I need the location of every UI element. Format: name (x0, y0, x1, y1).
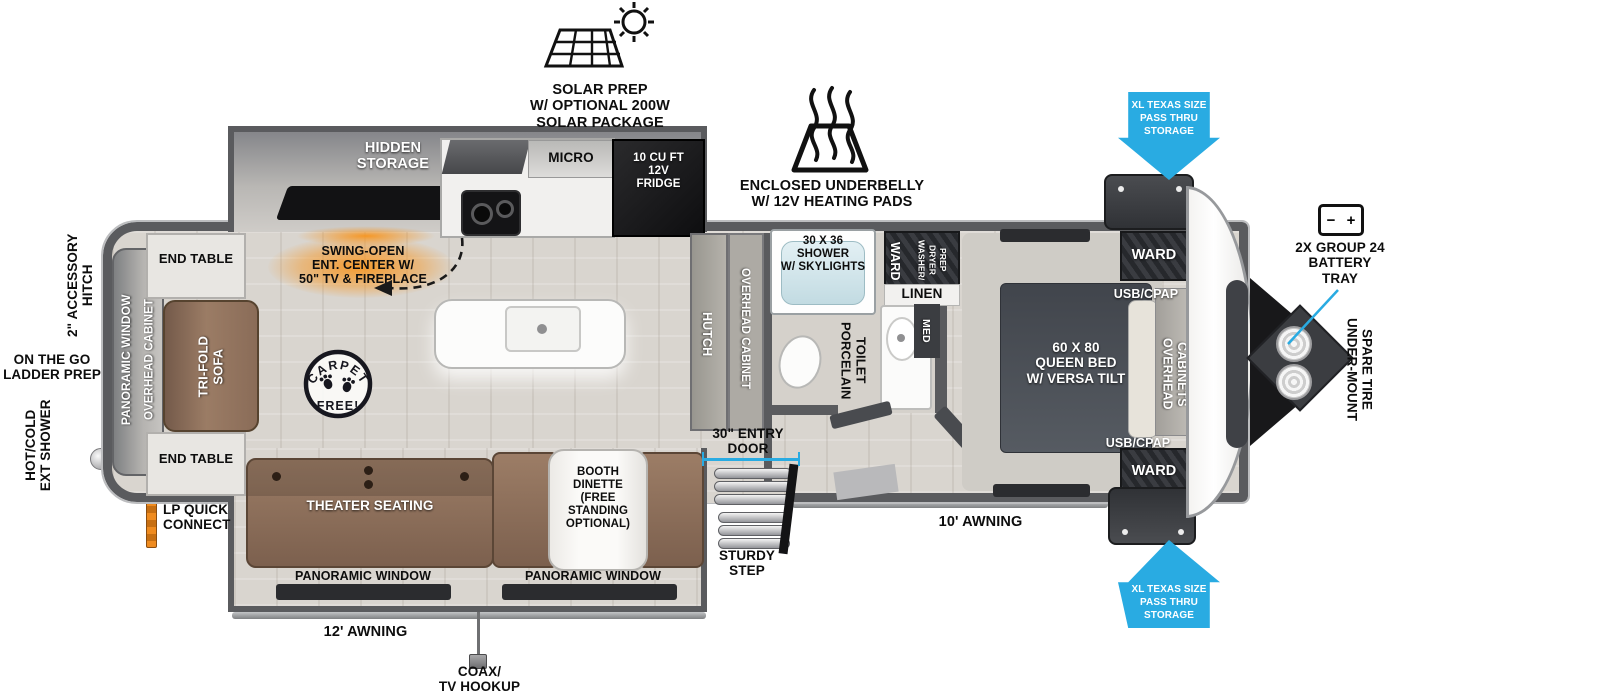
queen-bed-label: 60 X 80 QUEEN BED W/ VERSA TILT (1000, 340, 1152, 386)
panoramic-window-label: PANORAMIC WINDOW (494, 569, 692, 583)
cupholder-icon (460, 472, 469, 481)
window-slit (1000, 229, 1090, 242)
pass-thru-box-bottom (1108, 487, 1196, 545)
battery-tray-label: 2X GROUP 24 BATTERY TRAY (1284, 240, 1396, 286)
door-dimension-line (702, 458, 800, 461)
enclosed-underbelly-label: ENCLOSED UNDERBELLY W/ 12V HEATING PADS (722, 178, 942, 211)
cupholder-icon (364, 466, 373, 475)
dinette-bench (642, 452, 704, 568)
propane-tank-icon (1276, 364, 1312, 400)
overhead-cabinet-mid-label: OVERHEAD CABINET (738, 245, 751, 413)
swing-arrow-icon (372, 230, 468, 304)
pass-thru-arrow-up-icon: XL TEXAS SIZE PASS THRU STORAGE (1118, 540, 1220, 628)
lp-quick-connect-label: LP QUICK CONNECT (163, 502, 288, 533)
pass-thru-arrow-down-icon: XL TEXAS SIZE PASS THRU STORAGE (1118, 92, 1220, 180)
ladder-prep-label: ON THE GO LADDER PREP (0, 352, 104, 383)
ext-shower-label: HOT/COLD EXT SHOWER (23, 385, 54, 505)
porcelain-toilet-label: PORCELAIN TOILET (838, 303, 867, 418)
tri-fold-sofa-label: TRI-FOLD SOFA (196, 312, 225, 422)
entry-steps-upper (714, 468, 792, 507)
overhead-cabinets-bed-label: OVERHEAD CABINETS (1160, 314, 1189, 434)
faucet-icon (897, 334, 905, 342)
dinette-bench (492, 452, 554, 568)
shower-label: 30 X 36 SHOWER W/ SKYLIGHTS (770, 235, 876, 274)
window-slit (502, 584, 677, 600)
latch-icon (1176, 186, 1182, 192)
battery-leader-line (1280, 286, 1344, 350)
battery-icon: −+ (1318, 204, 1364, 236)
accessory-hitch-label: 2" ACCESSORY HITCH (65, 223, 96, 347)
carpet-free-badge: CARPET FREE! (300, 346, 376, 422)
solar-prep-label: SOLAR PREP W/ OPTIONAL 200W SOLAR PACKAG… (505, 82, 695, 131)
hutch-label: HUTCH (700, 303, 714, 365)
washer-dryer-prep-label: WASHER/ DRYER PREP (916, 231, 948, 289)
rv-floorplan: HIDDEN STORAGE MICRO 10 CU FT 12V FRIDGE… (0, 0, 1600, 697)
usb-cpap-bottom-label: USB/CPAP (1090, 436, 1186, 450)
med-label: MED (919, 308, 931, 354)
lp-quick-connect-icon (146, 498, 157, 548)
micro-label: MICRO (528, 150, 614, 165)
awning-rail-front (792, 501, 1108, 508)
window-slit (276, 584, 451, 600)
booth-dinette-label: BOOTH DINETTE (FREE STANDING OPTIONAL) (548, 466, 648, 531)
theater-seating-label: THEATER SEATING (262, 498, 478, 513)
awning-rear-label: 12' AWNING (288, 624, 443, 640)
sturdy-step-label: STURDY STEP (698, 548, 796, 579)
coax-line (477, 610, 480, 656)
fridge-label: 10 CU FT 12V FRIDGE (612, 152, 705, 191)
coax-tv-label: COAX/ TV HOOKUP (422, 664, 537, 695)
bath-wall-bottom (768, 405, 838, 415)
pass-thru-box-top (1104, 174, 1194, 230)
awning-front-label: 10' AWNING (918, 514, 1043, 530)
faucet-icon (537, 324, 547, 334)
panoramic-window-label: PANORAMIC WINDOW (264, 569, 462, 583)
window-slit (993, 484, 1090, 497)
range-hood (442, 140, 530, 174)
pass-thru-top-label: XL TEXAS SIZE PASS THRU STORAGE (1118, 99, 1220, 138)
battery-plus: + (1347, 212, 1356, 229)
awning-rail-rear (232, 612, 706, 619)
burner-icon (496, 200, 514, 218)
latch-icon (1118, 186, 1124, 192)
battery-minus: − (1327, 212, 1336, 229)
linen-label: LINEN (884, 286, 960, 301)
latch-icon (1178, 529, 1184, 535)
usb-cpap-top-label: USB/CPAP (1098, 287, 1194, 301)
latch-icon (1122, 529, 1128, 535)
panoramic-window-rear-label: PANORAMIC WINDOW (120, 276, 134, 444)
ward-bed-top-label: WARD (1120, 247, 1188, 263)
solar-panel-icon (540, 2, 662, 80)
cooktop (461, 190, 521, 236)
carpet-free-bottom-text: FREE! (317, 399, 360, 413)
entry-door-label: 30" ENTRY DOOR (688, 426, 808, 457)
end-table-bottom-label: END TABLE (146, 452, 246, 467)
ward-bed-bottom-label: WARD (1120, 463, 1188, 479)
cupholder-icon (272, 472, 281, 481)
overhead-cabinet-rear-label: OVERHEAD CABINET (144, 278, 157, 440)
heating-pads-icon (778, 84, 882, 176)
spare-tire-label: UNDER-MOUNT SPARE TIRE (1344, 308, 1375, 432)
burner-icon (471, 203, 493, 225)
end-table-top-label: END TABLE (146, 252, 246, 267)
pass-thru-bottom-label: XL TEXAS SIZE PASS THRU STORAGE (1118, 583, 1220, 622)
cupholder-icon (364, 480, 373, 489)
ward-bath-label: WARD (888, 234, 902, 288)
front-cap-shadow (1226, 280, 1248, 448)
